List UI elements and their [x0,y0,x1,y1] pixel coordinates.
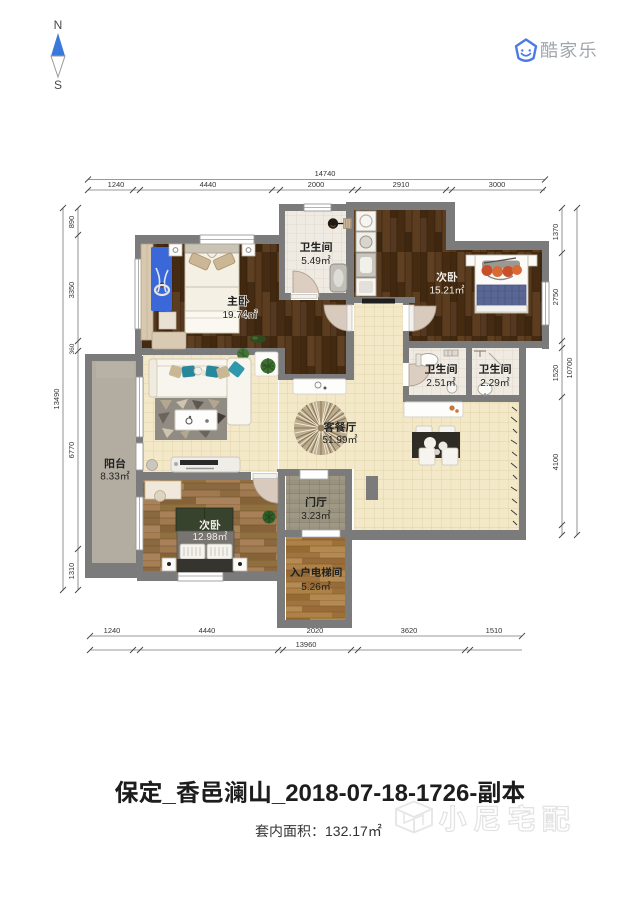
svg-text:3620: 3620 [401,626,418,635]
svg-text:5.26: 5.26 [301,582,321,593]
svg-text:51.99: 51.99 [323,435,348,446]
svg-text:132.17: 132.17 [325,823,368,839]
svg-text:6770: 6770 [67,442,76,459]
svg-text:2.51: 2.51 [426,378,446,389]
svg-text:2000: 2000 [308,180,325,189]
svg-text:19.74: 19.74 [223,310,248,321]
svg-text:3.23: 3.23 [301,511,321,522]
svg-text:2.29: 2.29 [480,378,500,389]
svg-text:1240: 1240 [108,180,125,189]
svg-text:1520: 1520 [551,365,560,382]
svg-text:3000: 3000 [489,180,506,189]
svg-text:S: S [54,78,62,92]
svg-text:2910: 2910 [393,180,410,189]
svg-text:1310: 1310 [67,563,76,580]
svg-text:2020: 2020 [307,626,324,635]
svg-text:_: _ [162,780,177,807]
svg-text:5.49: 5.49 [301,256,321,267]
svg-text:3350: 3350 [67,282,76,299]
svg-text:1370: 1370 [551,224,560,241]
svg-text:4440: 4440 [200,180,217,189]
svg-text:13490: 13490 [52,389,61,410]
svg-text:14740: 14740 [315,169,336,178]
svg-text:360: 360 [69,343,76,354]
svg-text:15.21: 15.21 [430,286,455,297]
svg-text:1240: 1240 [104,626,121,635]
svg-text:2750: 2750 [551,289,560,306]
svg-text:4440: 4440 [199,626,216,635]
svg-text:N: N [54,18,63,32]
svg-text:13960: 13960 [296,640,317,649]
svg-text:10700: 10700 [565,358,574,379]
svg-text:4100: 4100 [551,454,560,471]
svg-text:8.33: 8.33 [100,472,120,483]
svg-text:890: 890 [67,216,76,229]
svg-text:12.98: 12.98 [193,532,218,543]
svg-text:1510: 1510 [486,626,503,635]
svg-text:_2018-07-18-1726-: _2018-07-18-1726- [271,780,478,807]
